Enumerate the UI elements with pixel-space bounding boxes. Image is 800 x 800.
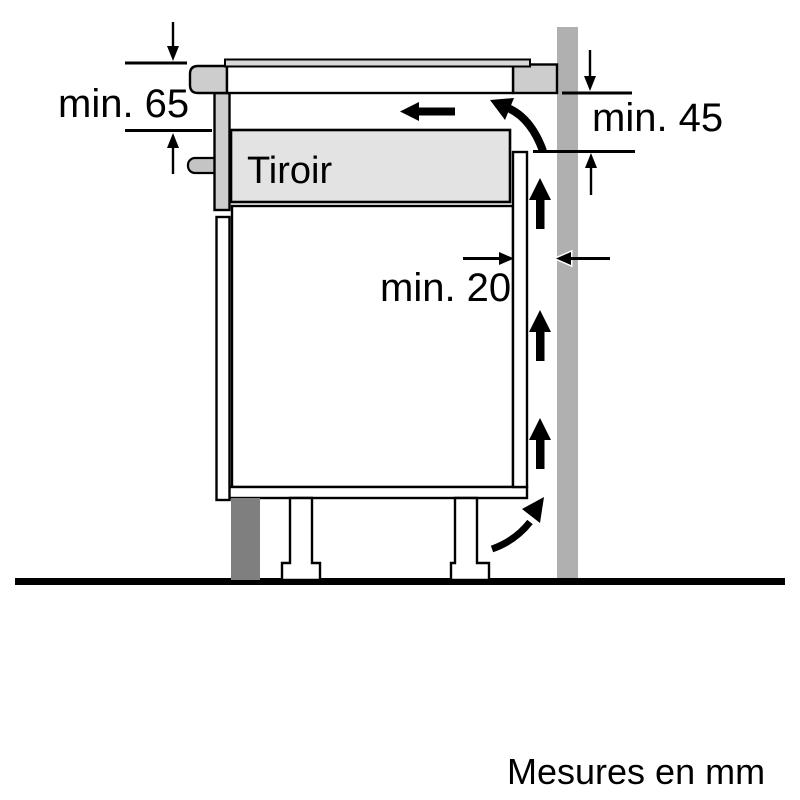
- airflow-curve-top: [508, 108, 543, 151]
- arrow-up-icon: [585, 153, 597, 168]
- cabinet-leg-right: [451, 498, 489, 580]
- arrow-down-icon: [584, 76, 596, 91]
- cabinet-interior: [232, 206, 513, 487]
- footer-note: Mesures en mm: [507, 751, 765, 792]
- diagram-canvas: Tiroir min. 65 min. 45 min. 20: [0, 0, 800, 800]
- airflow-up-arrow-3-shaft: [536, 438, 545, 469]
- cabinet-leg-left: [282, 498, 320, 580]
- airflow-up-arrow-2-shaft: [536, 330, 545, 361]
- cabinet-side-panel-upper: [215, 93, 230, 210]
- arrow-down-icon: [167, 46, 179, 61]
- arrow-up-icon: [167, 133, 179, 148]
- dimension-min65: min. 65: [58, 22, 212, 174]
- drawer-label: Tiroir: [247, 150, 332, 192]
- cooktop-glass-trim: [225, 60, 530, 67]
- airflow-curve-bottom: [492, 522, 530, 549]
- worktop-left-block: [190, 66, 227, 93]
- floor-line: [15, 578, 785, 585]
- cabinet-bottom-panel: [228, 487, 527, 498]
- wall: [557, 27, 578, 580]
- dim-label-min45: min. 45: [592, 96, 723, 140]
- cabinet-side-panel-lower: [217, 217, 230, 500]
- installation-diagram: Tiroir min. 65 min. 45 min. 20: [0, 0, 800, 800]
- plinth: [231, 498, 260, 580]
- dim-label-min65: min. 65: [58, 82, 189, 126]
- airflow-left-arrow-icon: [400, 102, 419, 121]
- airflow-left-arrow-shaft: [416, 108, 455, 116]
- airflow-up-arrow-2-icon: [529, 310, 551, 332]
- airflow-curve-bottom-head-icon: [522, 497, 544, 523]
- airflow-up-arrow-1-shaft: [536, 198, 545, 229]
- worktop-right-block: [513, 65, 557, 94]
- cabinet-back-panel: [513, 152, 527, 487]
- airflow-up-arrow-3-icon: [529, 418, 551, 440]
- cooktop-body: [227, 65, 513, 94]
- airflow-up-arrow-1-icon: [529, 178, 551, 200]
- dim-label-min20: min. 20: [380, 266, 511, 310]
